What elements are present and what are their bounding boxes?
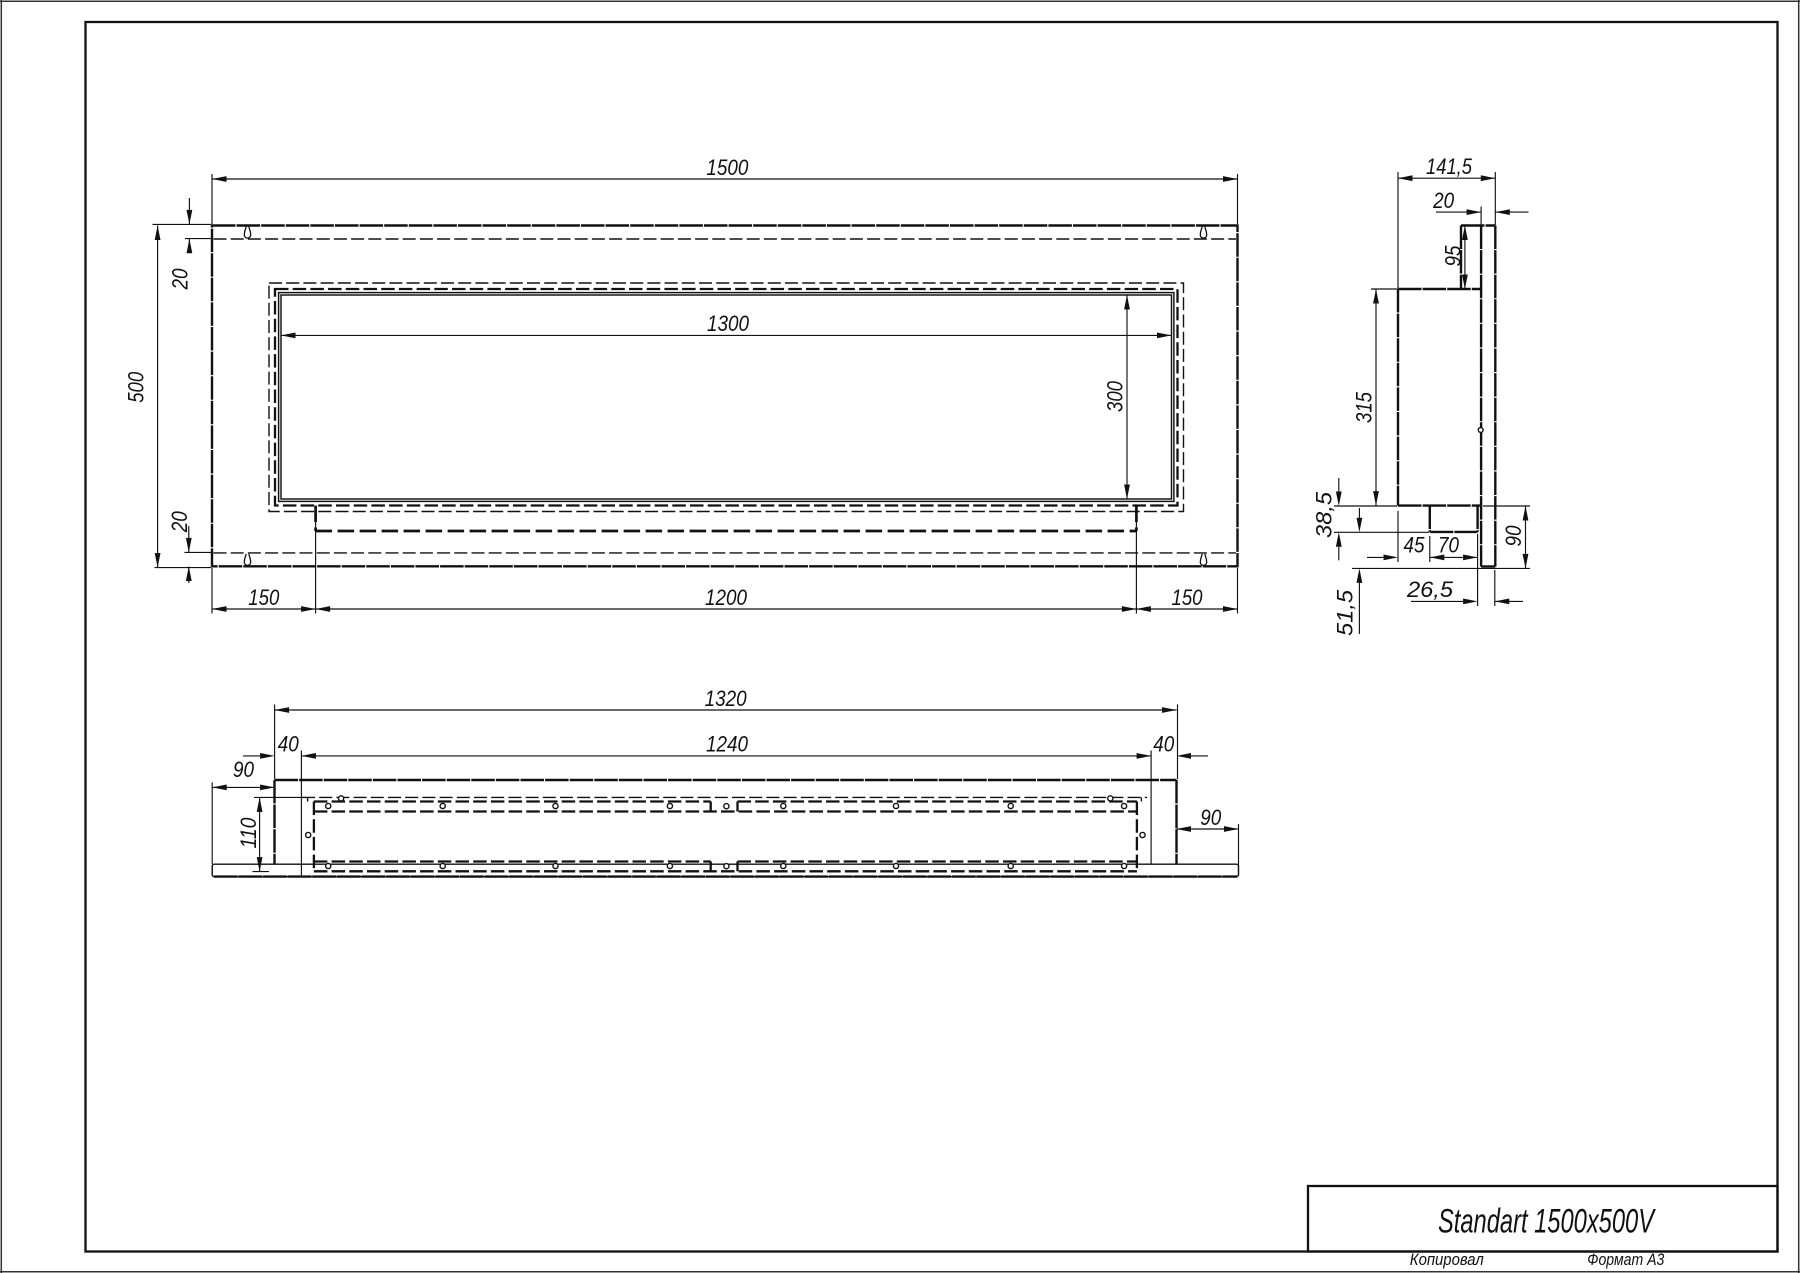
- svg-text:110: 110: [236, 817, 261, 849]
- svg-text:150: 150: [248, 585, 280, 610]
- svg-text:90: 90: [1501, 525, 1526, 547]
- svg-text:Standart 1500x500V: Standart 1500x500V: [1438, 1203, 1656, 1241]
- svg-text:20: 20: [168, 268, 193, 291]
- svg-text:90: 90: [1200, 805, 1222, 830]
- svg-text:500: 500: [123, 371, 148, 403]
- svg-text:141,5: 141,5: [1426, 154, 1473, 179]
- svg-text:40: 40: [278, 732, 300, 757]
- svg-text:26,5: 26,5: [1406, 577, 1454, 602]
- svg-text:45: 45: [1404, 533, 1426, 558]
- svg-text:Копировал: Копировал: [1410, 1250, 1484, 1269]
- svg-text:1500: 1500: [706, 155, 749, 180]
- svg-text:95: 95: [1441, 245, 1466, 267]
- svg-text:51,5: 51,5: [1333, 589, 1358, 636]
- svg-text:40: 40: [1153, 732, 1175, 757]
- svg-text:38,5: 38,5: [1312, 491, 1337, 538]
- svg-text:20: 20: [1432, 188, 1455, 213]
- svg-text:90: 90: [233, 757, 255, 782]
- svg-text:315: 315: [1352, 391, 1377, 423]
- svg-text:70: 70: [1438, 533, 1460, 558]
- svg-text:Формат А3: Формат А3: [1587, 1250, 1664, 1269]
- svg-text:150: 150: [1172, 585, 1204, 610]
- svg-text:1320: 1320: [705, 686, 748, 711]
- svg-text:1200: 1200: [705, 585, 748, 610]
- svg-text:1240: 1240: [706, 732, 749, 757]
- svg-text:300: 300: [1103, 380, 1128, 412]
- svg-text:20: 20: [167, 511, 192, 534]
- svg-text:1300: 1300: [707, 311, 750, 336]
